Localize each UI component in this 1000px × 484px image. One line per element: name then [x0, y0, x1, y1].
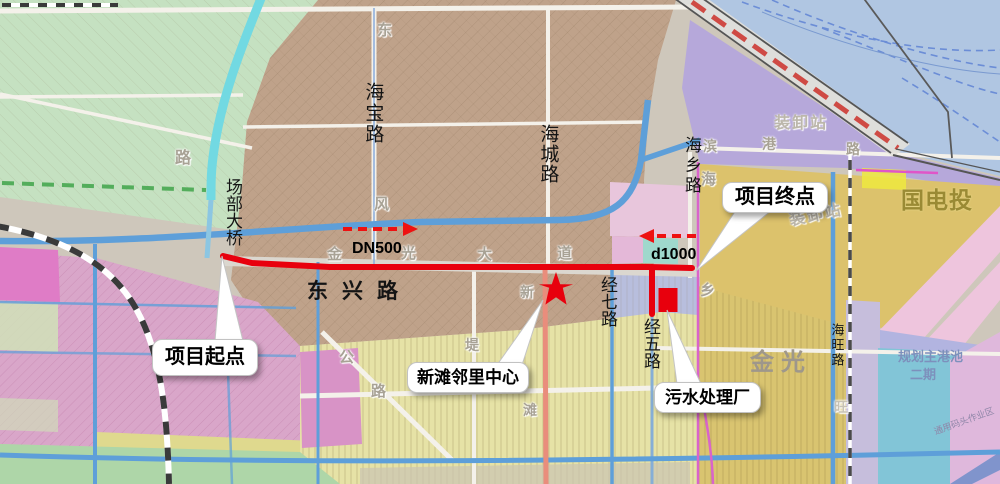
neighborhood-callout-pointer — [497, 300, 543, 365]
route-main-line — [223, 256, 692, 268]
start-callout-pointer — [215, 256, 243, 341]
end-callout-pointer — [696, 210, 772, 271]
sewage-plant-callout: 污水处理厂 — [654, 382, 761, 413]
sewage-plant-marker — [659, 288, 678, 312]
neighborhood-center-callout: 新滩邻里中心 — [407, 362, 529, 393]
arrowhead-west — [639, 229, 654, 243]
arrowhead-east — [403, 222, 418, 236]
flow-arrow-east — [343, 222, 418, 236]
project-route — [223, 256, 692, 314]
project-end-callout: 项目终点 — [722, 182, 828, 213]
sewage-callout-pointer — [667, 310, 701, 384]
project-start-callout: 项目起点 — [152, 339, 258, 376]
star-marker — [539, 272, 573, 305]
map-canvas[interactable]: 东 风 路 金 光 大 道 公 路 新 滩 堤 滨 港 路 海 乡 旺 海宝路 … — [0, 0, 1000, 484]
route-overlay-layer — [0, 0, 1000, 484]
flow-arrow-west — [639, 229, 696, 243]
